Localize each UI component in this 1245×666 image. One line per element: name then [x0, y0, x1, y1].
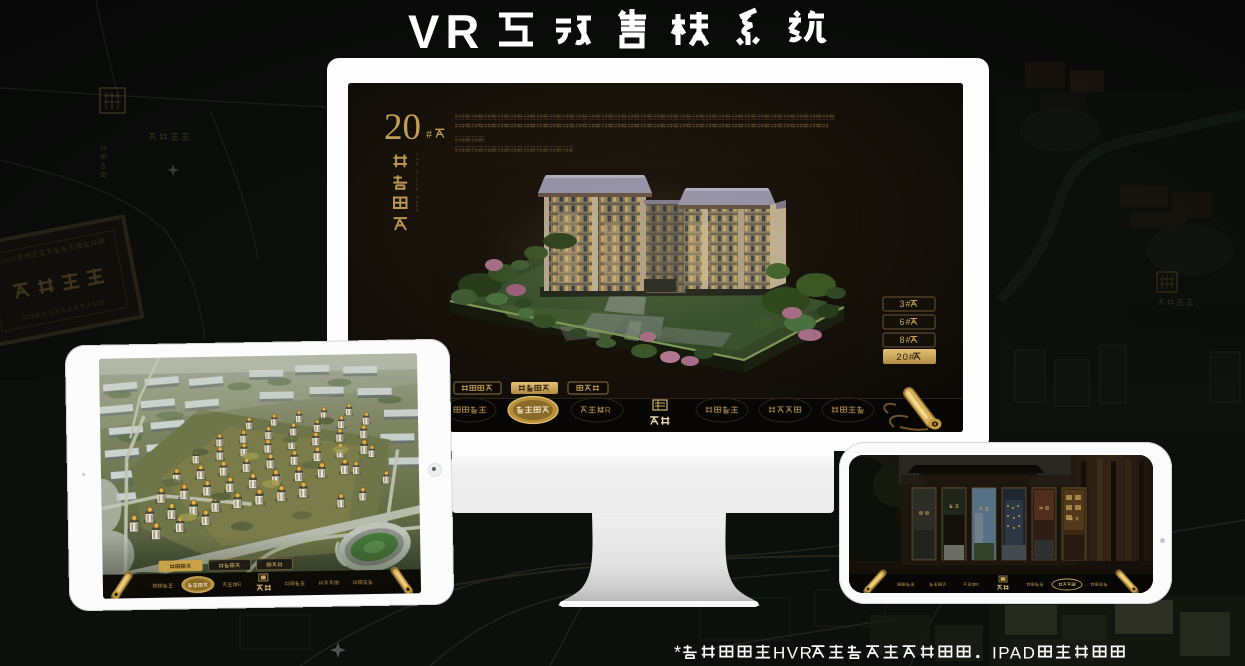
- svg-text:HVR: HVR: [773, 644, 813, 663]
- svg-text:IPAD: IPAD: [992, 644, 1036, 663]
- svg-text:*: *: [674, 643, 681, 663]
